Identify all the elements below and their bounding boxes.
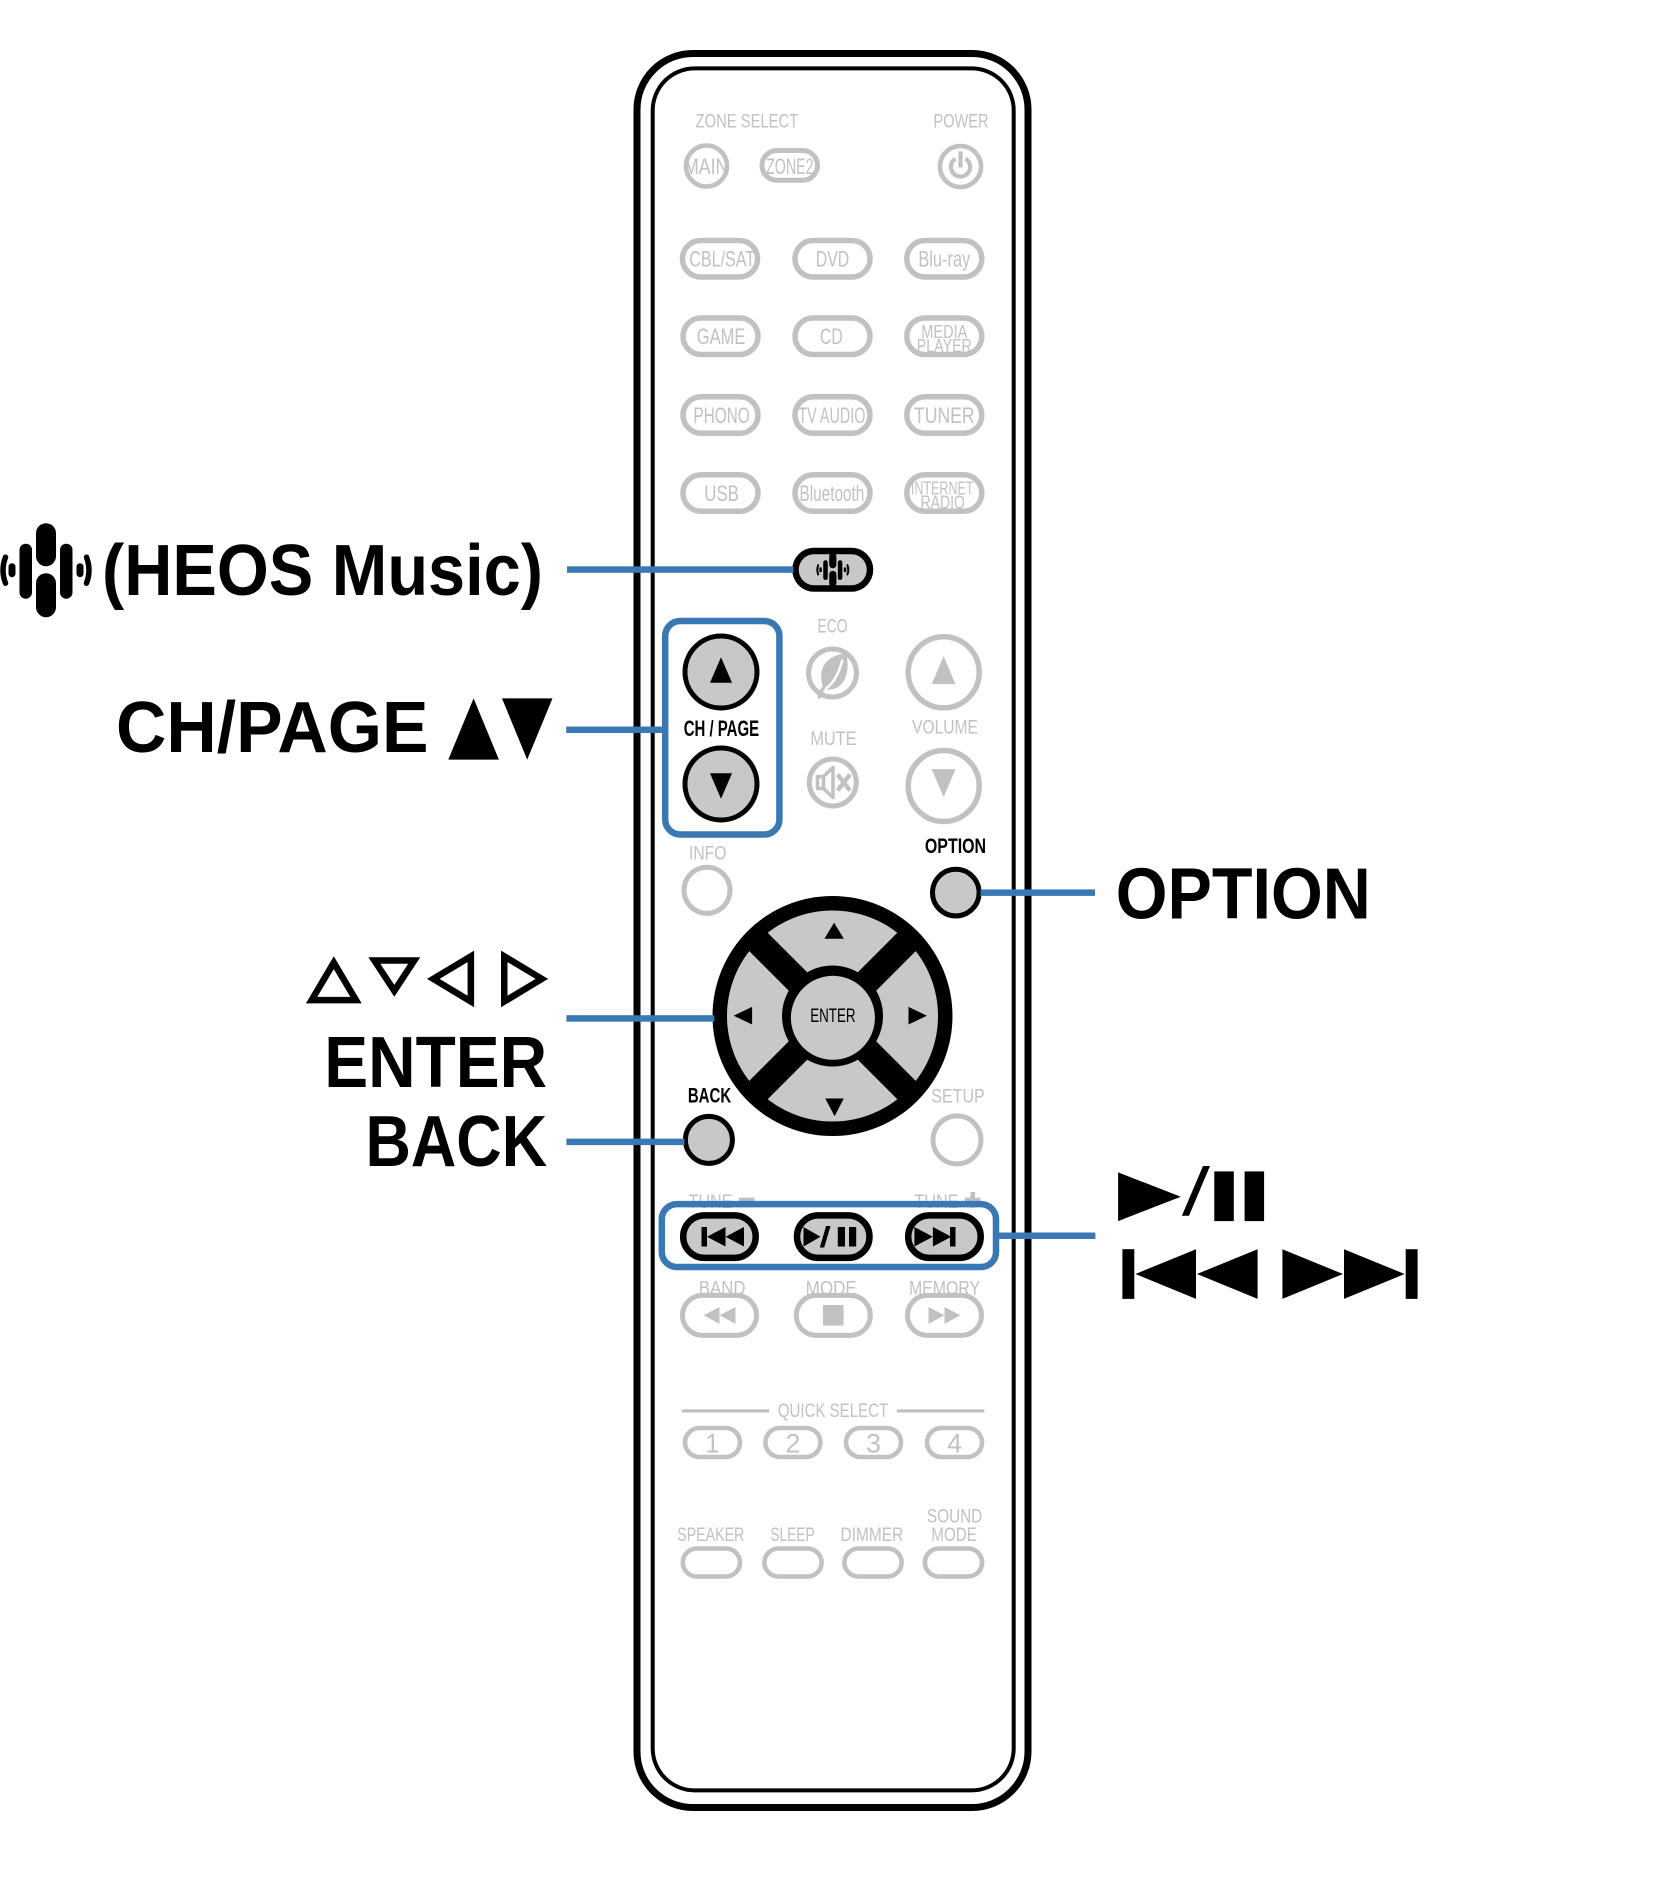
svg-text:GAME: GAME <box>697 324 746 349</box>
svg-text:(HEOS Music): (HEOS Music) <box>102 531 543 611</box>
svg-text:INFO: INFO <box>689 842 726 864</box>
svg-text:Blu-ray: Blu-ray <box>918 247 970 272</box>
svg-text:TUNER: TUNER <box>914 403 975 428</box>
svg-text:ECO: ECO <box>818 615 848 637</box>
svg-text:USB: USB <box>704 481 739 506</box>
svg-text:SLEEP: SLEEP <box>770 1524 814 1546</box>
svg-text:BACK: BACK <box>688 1085 731 1108</box>
svg-text:SPEAKER: SPEAKER <box>677 1524 744 1546</box>
svg-text:OPTION: OPTION <box>925 835 986 858</box>
svg-text:CD: CD <box>820 324 843 349</box>
svg-text:CBL/SAT: CBL/SAT <box>689 247 755 272</box>
svg-text:TV AUDIO: TV AUDIO <box>798 403 865 428</box>
svg-text:CH/PAGE: CH/PAGE <box>116 688 429 768</box>
svg-text:CH / PAGE: CH / PAGE <box>684 716 759 741</box>
svg-text:DIMMER: DIMMER <box>841 1524 904 1546</box>
svg-text:POWER: POWER <box>934 110 989 132</box>
svg-text:PLAYER: PLAYER <box>917 336 972 356</box>
svg-text:2: 2 <box>785 1429 800 1459</box>
svg-text:VOLUME: VOLUME <box>912 716 978 738</box>
svg-text:4: 4 <box>947 1429 962 1459</box>
svg-text:Bluetooth: Bluetooth <box>800 481 865 506</box>
svg-text:3: 3 <box>866 1429 881 1459</box>
svg-text:MUTE: MUTE <box>810 728 856 750</box>
svg-text:ENTER: ENTER <box>324 1023 547 1103</box>
svg-text:MAIN: MAIN <box>684 154 728 179</box>
svg-text:PHONO: PHONO <box>694 403 750 428</box>
svg-text:DVD: DVD <box>816 247 850 272</box>
svg-text:ZONE2: ZONE2 <box>766 154 814 179</box>
svg-text:1: 1 <box>705 1429 719 1459</box>
svg-text:SETUP: SETUP <box>931 1086 985 1108</box>
svg-text:BACK: BACK <box>366 1102 548 1182</box>
svg-text:RADIO: RADIO <box>921 493 965 513</box>
svg-text:MODE: MODE <box>931 1524 976 1546</box>
svg-text:ENTER: ENTER <box>810 1006 855 1027</box>
svg-text:ZONE SELECT: ZONE SELECT <box>696 110 799 132</box>
svg-text:QUICK SELECT: QUICK SELECT <box>778 1400 888 1422</box>
svg-text:OPTION: OPTION <box>1116 855 1371 935</box>
